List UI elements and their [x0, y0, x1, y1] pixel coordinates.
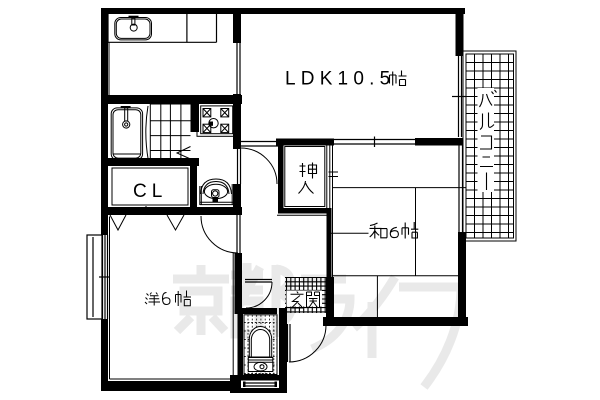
svg-text:LDK10.5: LDK10.5 — [285, 69, 395, 90]
svg-text:CL: CL — [133, 181, 167, 202]
